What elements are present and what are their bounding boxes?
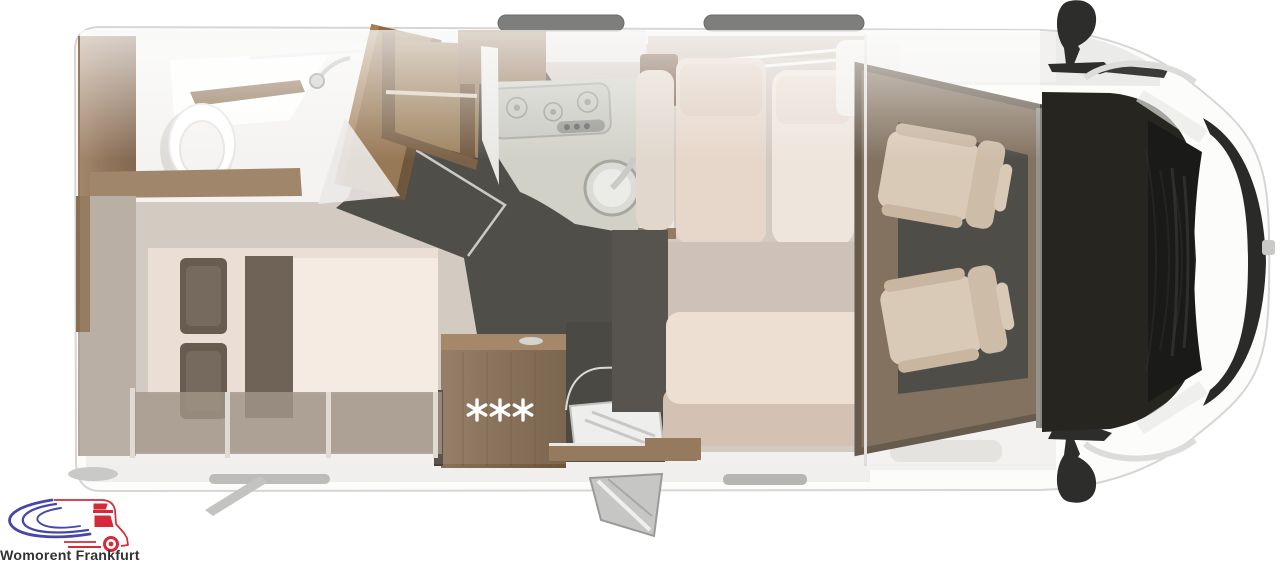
svg-text:Womorent Frankfurt: Womorent Frankfurt (0, 548, 140, 561)
